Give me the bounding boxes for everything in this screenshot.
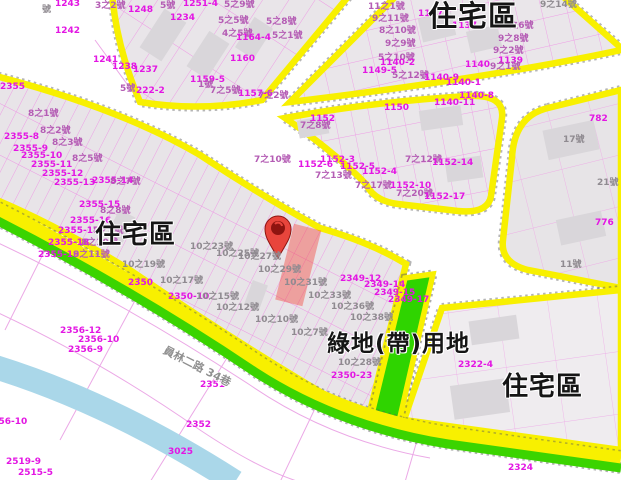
map-canvas[interactable] [0,0,621,480]
map-viewport: 號12433之2號12485號123412421241123812375號222… [0,0,621,480]
